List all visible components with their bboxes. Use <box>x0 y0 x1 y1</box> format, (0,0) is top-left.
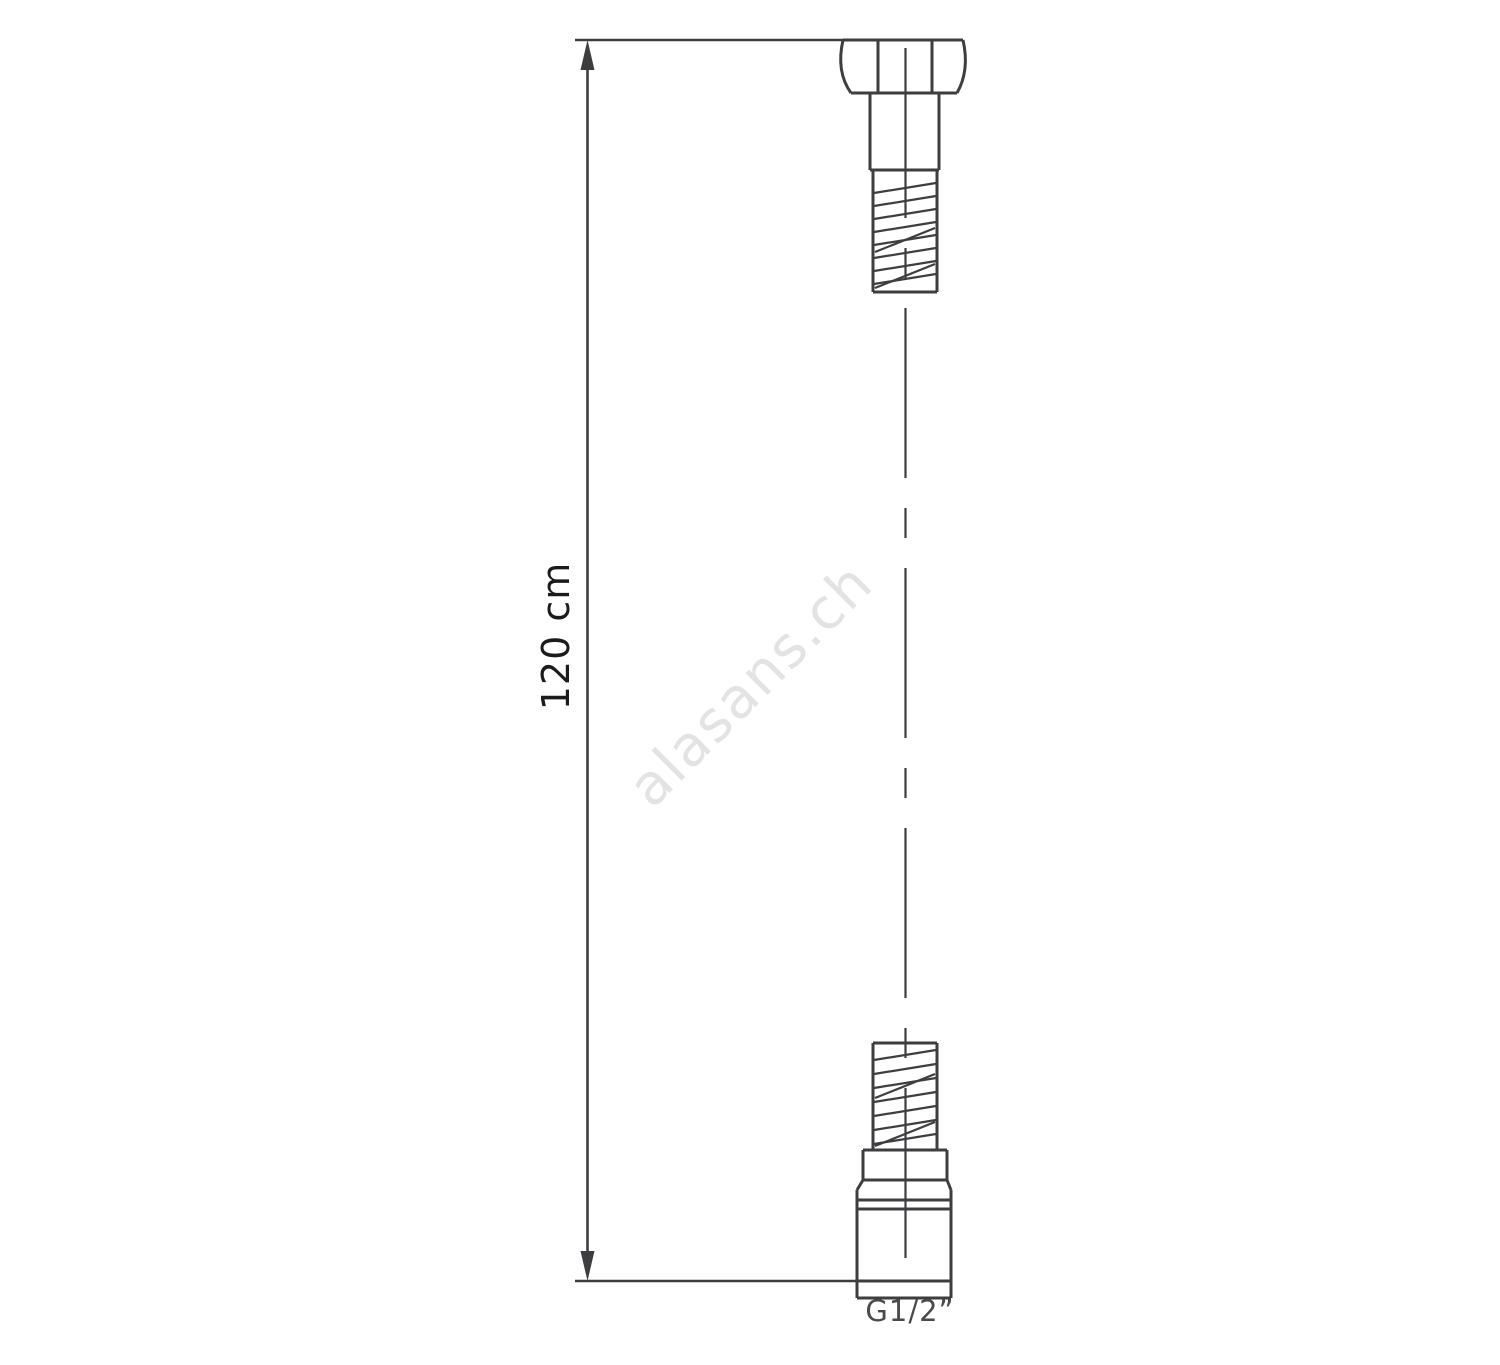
dimension-group <box>575 40 857 1281</box>
dimension-length-label: 120 cm <box>534 562 578 711</box>
arrow-up-icon <box>581 40 595 70</box>
thread-size-label: G1/2” <box>865 1294 954 1328</box>
hose-technical-drawing <box>0 0 1500 1365</box>
upper-nut-left-edge <box>841 40 851 93</box>
upper-fitting <box>841 40 966 292</box>
lower-fitting <box>857 1043 951 1298</box>
upper-nut-right-edge <box>957 40 965 93</box>
arrow-down-icon <box>581 1251 595 1281</box>
lower-chamfer-left <box>857 1180 863 1190</box>
drawing-canvas: alasans.ch <box>0 0 1500 1365</box>
lower-chamfer-right <box>947 1180 951 1190</box>
